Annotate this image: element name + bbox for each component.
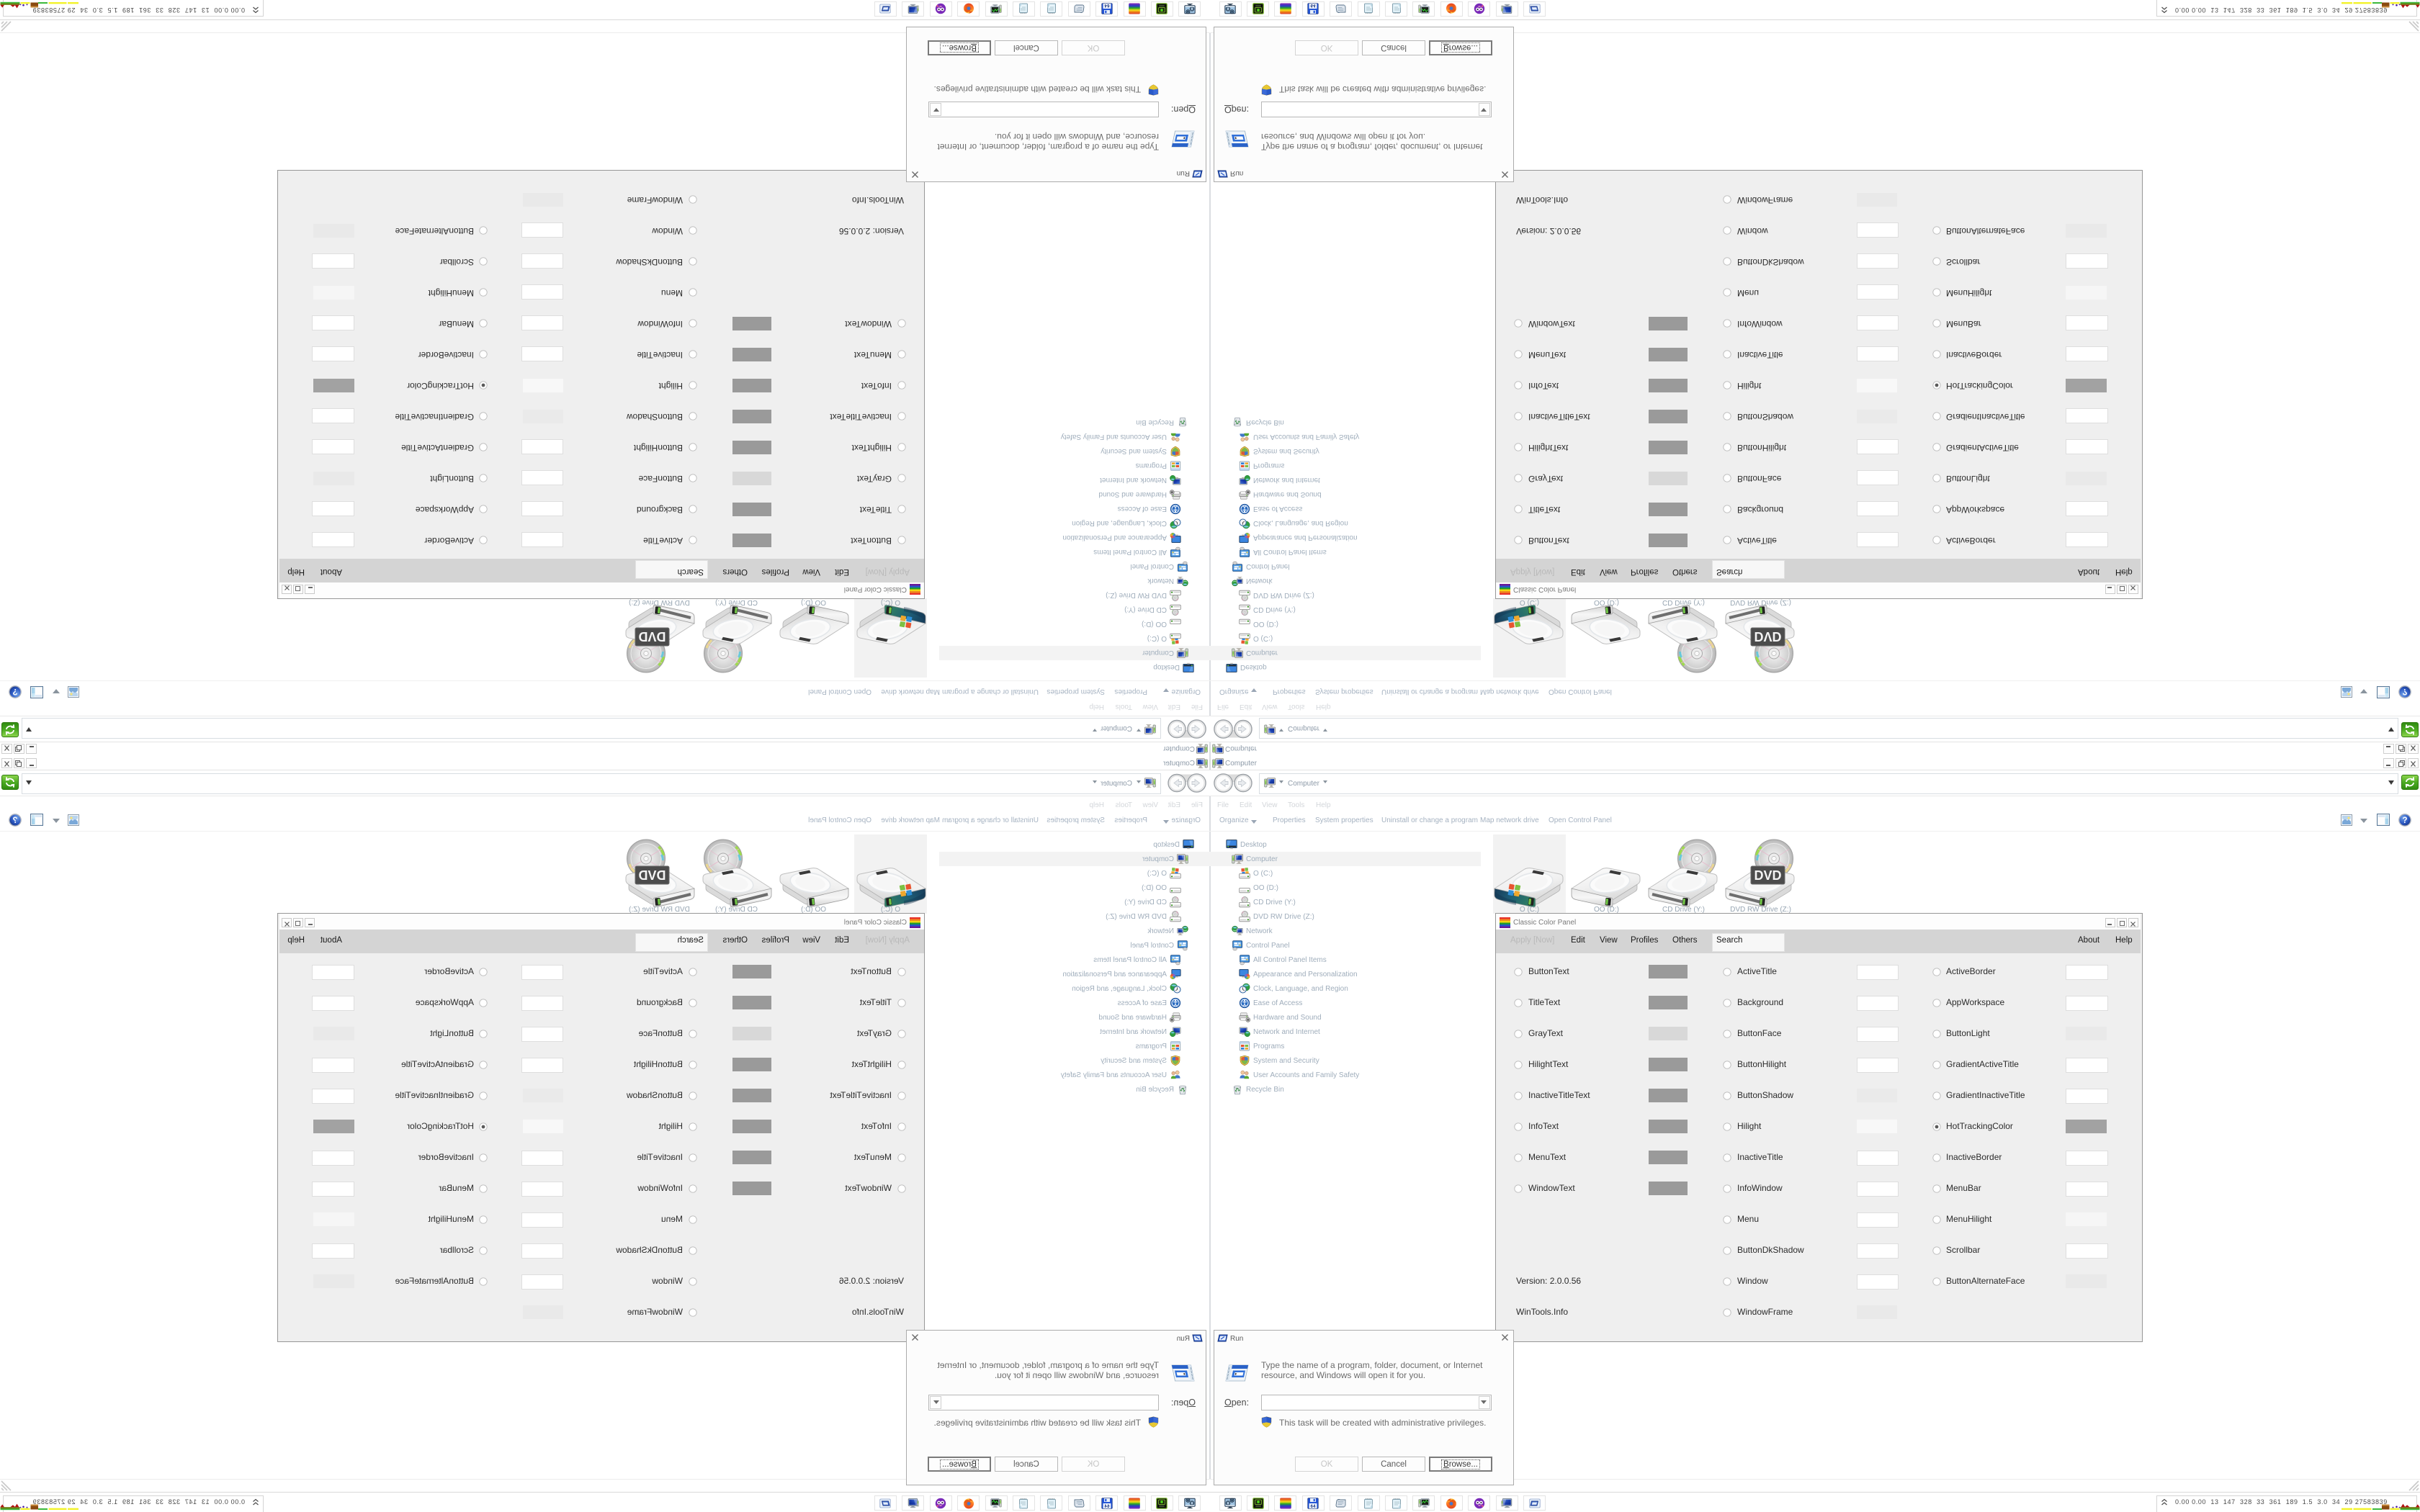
svg-text:?: ? — [12, 816, 17, 825]
svg-text:DVD: DVD — [1754, 868, 1781, 883]
svg-text:64: 64 — [1104, 4, 1110, 9]
svg-text:64: 64 — [1311, 1504, 1317, 1509]
svg-text:64: 64 — [1311, 4, 1317, 9]
svg-text:?: ? — [2402, 816, 2407, 825]
svg-text:DVD: DVD — [638, 868, 665, 883]
svg-text:DVD: DVD — [638, 629, 665, 644]
svg-text:?: ? — [2402, 687, 2407, 696]
svg-text:64: 64 — [1104, 1504, 1110, 1509]
svg-text:DVD: DVD — [1754, 629, 1781, 644]
svg-text:?: ? — [12, 687, 17, 696]
